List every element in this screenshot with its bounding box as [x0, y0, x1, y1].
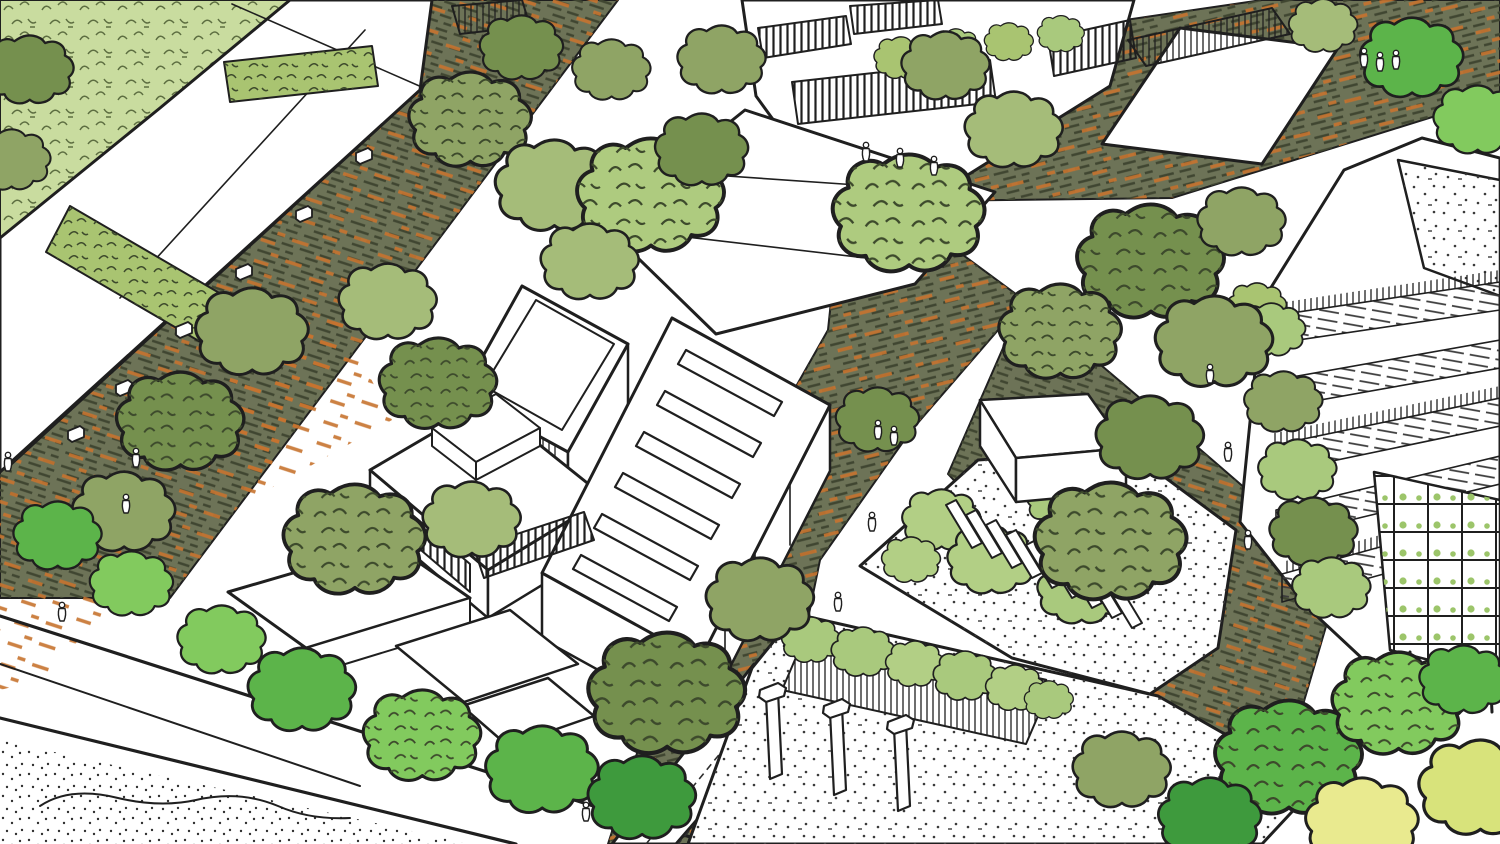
tree-canopy-texture	[1035, 483, 1187, 600]
pedestrian	[1224, 442, 1231, 461]
pedestrian	[1376, 52, 1383, 71]
clerestory-vine	[933, 651, 997, 700]
hedge	[13, 501, 101, 569]
pedestrian	[582, 802, 589, 821]
tree-canopy-texture	[588, 633, 745, 754]
tree-canopy	[1197, 187, 1285, 255]
clerestory-vine	[831, 627, 895, 676]
pedestrian	[834, 592, 841, 611]
roof-garden-shrub	[882, 537, 941, 582]
tree-canopy-texture	[999, 284, 1121, 378]
pedestrian	[122, 494, 129, 513]
hedge	[177, 605, 265, 673]
cascade-planting	[1258, 439, 1336, 499]
trellis-facade-grid	[1374, 472, 1500, 678]
tree-canopy	[1158, 778, 1261, 844]
pedestrian	[1244, 530, 1251, 549]
tree-canopy-texture	[283, 484, 425, 593]
pedestrian	[1206, 364, 1213, 383]
pedestrian	[874, 420, 881, 439]
tree-canopy	[480, 15, 563, 79]
pedestrian	[132, 448, 139, 467]
pedestrian	[1360, 48, 1367, 67]
terrace-green-strip	[984, 23, 1033, 61]
pedestrian	[862, 142, 869, 161]
tree-canopy	[1419, 645, 1500, 713]
hedge	[90, 551, 173, 615]
tree-canopy	[423, 482, 521, 557]
illustration-stage	[0, 0, 1500, 844]
tree-canopy	[677, 25, 765, 93]
hedge	[588, 756, 696, 839]
tree-canopy	[1360, 18, 1463, 97]
tree-canopy	[655, 114, 748, 186]
pedestrian	[1392, 50, 1399, 69]
pedestrian	[4, 452, 11, 471]
cascade-planting	[1269, 497, 1357, 565]
tree-canopy	[1096, 396, 1204, 479]
pedestrian	[930, 156, 937, 175]
tree-canopy	[572, 39, 650, 99]
hedge	[248, 648, 356, 731]
tree-canopy-texture	[833, 155, 985, 272]
tree-canopy	[196, 288, 309, 375]
tree-canopy	[965, 92, 1063, 167]
tree-canopy	[836, 387, 919, 451]
cascade-planting	[1244, 371, 1322, 431]
tree-canopy	[1073, 732, 1171, 807]
hedge-texture	[363, 690, 481, 780]
hedge	[486, 726, 599, 813]
tree-canopy	[541, 224, 639, 299]
tree-canopy	[0, 35, 74, 103]
pedestrian	[896, 148, 903, 167]
tree-canopy	[339, 264, 437, 339]
tree-canopy	[901, 31, 989, 99]
tree-canopy-texture	[379, 338, 497, 428]
tree-canopy	[1433, 85, 1500, 153]
cascade-planting	[1292, 557, 1370, 617]
aerial-sketch-canvas	[0, 0, 1500, 844]
clerestory-vine	[1024, 681, 1073, 719]
pedestrian	[890, 426, 897, 445]
tree-canopy	[706, 558, 814, 641]
terrace-green-strip	[1037, 16, 1084, 52]
tree-canopy	[1306, 778, 1419, 844]
tree-canopy	[1289, 0, 1358, 52]
pedestrian	[868, 512, 875, 531]
pedestrian	[58, 602, 65, 621]
